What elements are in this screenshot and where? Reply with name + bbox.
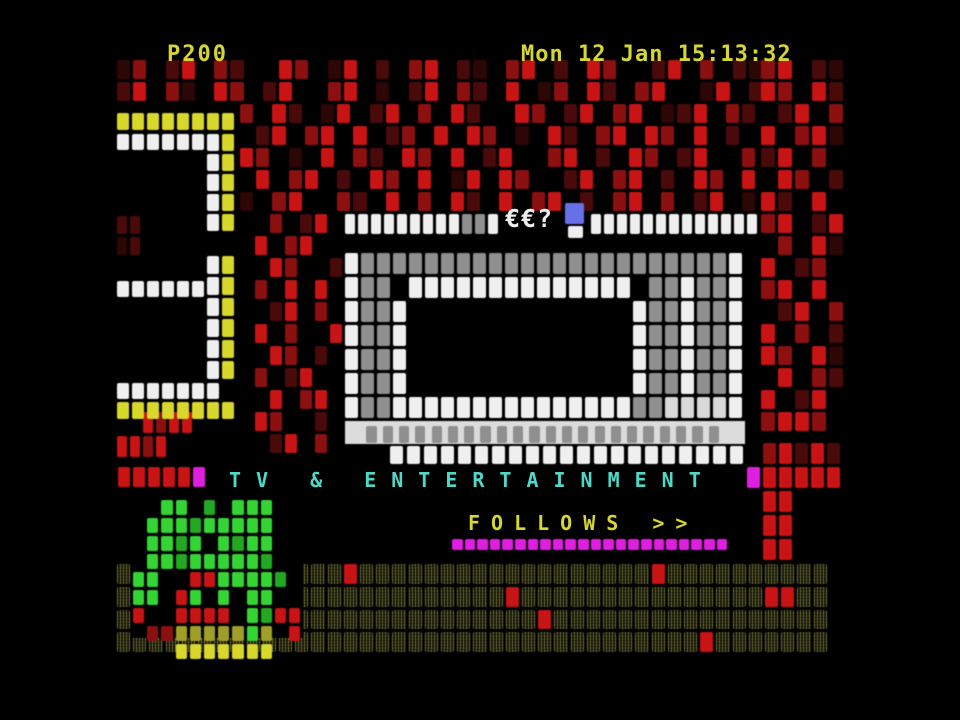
mosaic-layer	[0, 0, 960, 720]
teletext-screen: P200 Mon 12 Jan 15:13:32 €€? TV & ENTERT…	[0, 0, 960, 720]
tv-speaker-strip	[345, 421, 745, 444]
page-number: P200	[167, 42, 228, 67]
follows-label: FOLLOWS >>	[468, 511, 698, 535]
antenna-glyphs: €€?	[505, 204, 553, 233]
banner-title: TV & ENTERTAINMENT	[229, 468, 716, 492]
clock: Mon 12 Jan 15:13:32	[521, 42, 792, 67]
